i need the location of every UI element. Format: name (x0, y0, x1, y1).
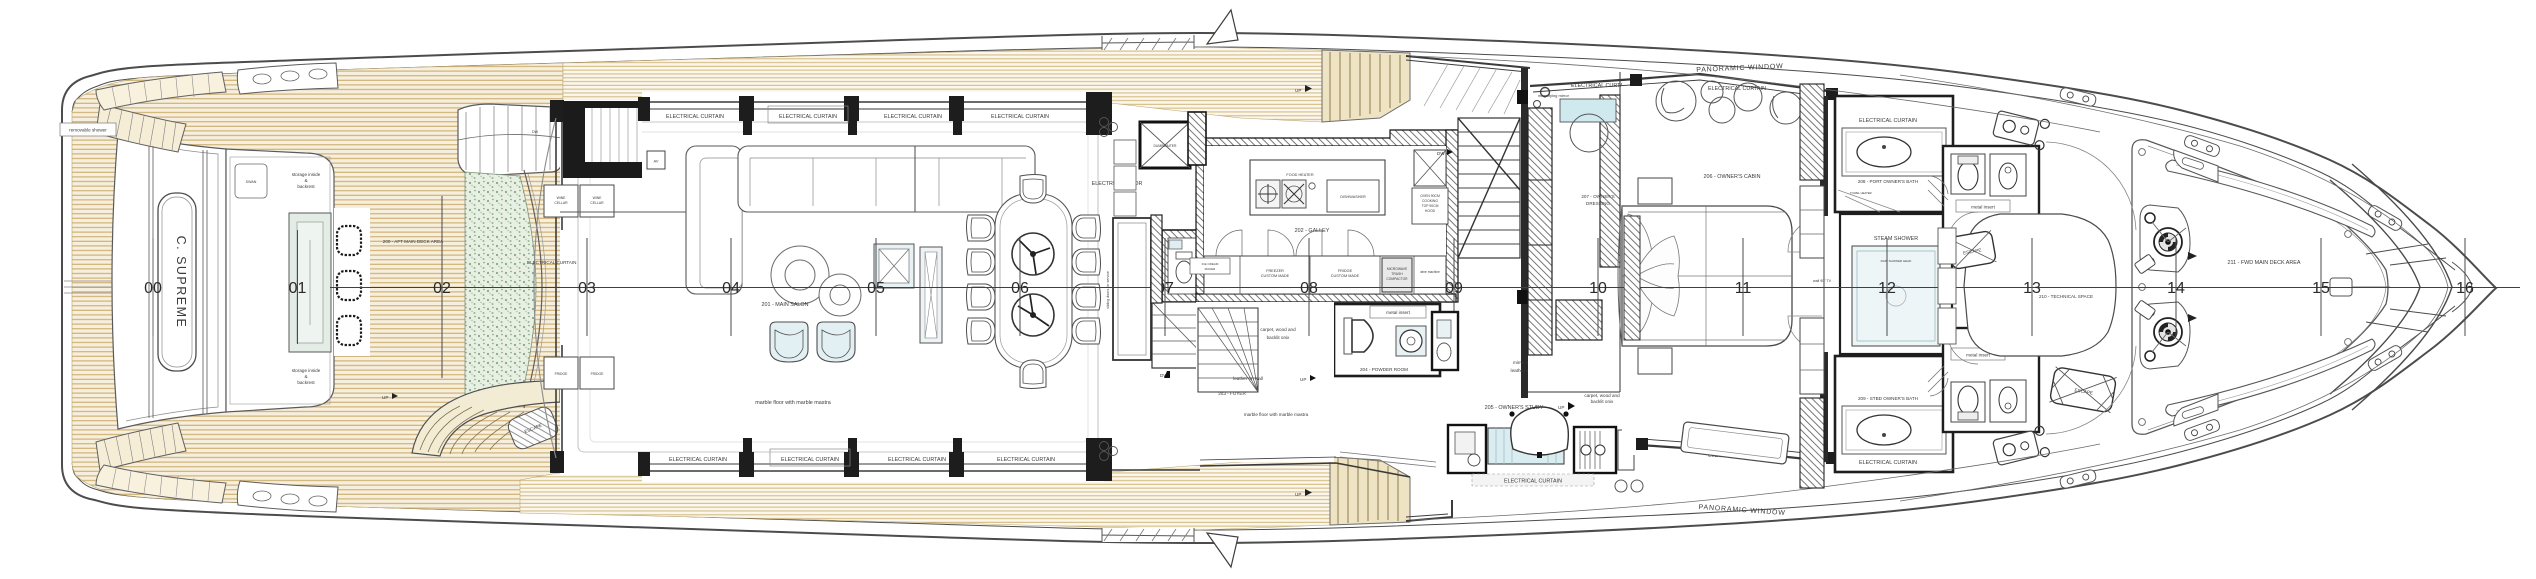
svg-text:C. SUPREME: C. SUPREME (174, 236, 188, 329)
svg-text:206 - OWNER'S CABIN: 206 - OWNER'S CABIN (1703, 174, 1760, 180)
svg-text:13: 13 (2023, 280, 2041, 297)
svg-text:sliding doors for service: sliding doors for service (1106, 271, 1110, 309)
svg-text:metal insert: metal insert (1386, 310, 1410, 315)
svg-text:FRIDGE: FRIDGE (555, 372, 569, 376)
svg-text:TOWEL HEATER: TOWEL HEATER (1850, 191, 1872, 195)
svg-text:carpet, wood and: carpet, wood and (1260, 327, 1296, 332)
svg-text:UP: UP (1558, 405, 1564, 410)
svg-text:TOP 90CM: TOP 90CM (1422, 204, 1439, 208)
svg-text:06: 06 (1011, 280, 1029, 297)
svg-text:backrest: backrest (297, 380, 315, 385)
svg-text:backrest: backrest (297, 184, 315, 189)
svg-text:209 - STBD OWNER'S BATH: 209 - STBD OWNER'S BATH (1858, 396, 1918, 401)
svg-text:DW: DW (532, 130, 539, 134)
svg-text:RAIN SHOWER HEAD: RAIN SHOWER HEAD (1881, 259, 1913, 263)
svg-text:ELECTRICAL CURTAIN: ELECTRICAL CURTAIN (779, 114, 837, 120)
svg-text:leather on wall: leather on wall (1233, 376, 1263, 381)
svg-text:ELECTRICAL CURTAIN: ELECTRICAL CURTAIN (991, 114, 1049, 120)
svg-text:FRIDGE: FRIDGE (591, 372, 605, 376)
svg-text:15: 15 (2312, 280, 2330, 297)
svg-text:&: & (304, 374, 307, 379)
svg-text:marble floor with marble mastr: marble floor with marble mastra (1244, 412, 1309, 417)
svg-text:&: & (304, 178, 307, 183)
svg-text:MAKER: MAKER (1205, 267, 1217, 271)
svg-text:SWAN: SWAN (246, 180, 257, 184)
svg-text:ELECTRICAL CURTAIN: ELECTRICAL CURTAIN (884, 114, 942, 120)
svg-text:DUMBWAITER: DUMBWAITER (1153, 144, 1177, 148)
svg-text:ELECTRICAL CURTAIN: ELECTRICAL CURTAIN (1504, 479, 1562, 485)
svg-text:ELECTRICAL CURTAIN: ELECTRICAL CURTAIN (781, 457, 839, 463)
svg-text:metal insert: metal insert (1971, 205, 1995, 210)
svg-text:05: 05 (867, 280, 885, 297)
svg-text:08: 08 (1300, 280, 1318, 297)
svg-text:200 - AFT MAIN DECK AREA: 200 - AFT MAIN DECK AREA (383, 239, 444, 244)
svg-text:storage inside: storage inside (292, 172, 321, 177)
svg-text:backlit onix: backlit onix (1267, 335, 1290, 340)
svg-text:storage inside: storage inside (292, 368, 321, 373)
svg-text:MICROWAVE: MICROWAVE (1387, 267, 1408, 271)
svg-text:203 - FOYER: 203 - FOYER (1218, 391, 1246, 396)
svg-text:ELECTRICAL CURTAIN: ELECTRICAL CURTAIN (1859, 460, 1917, 466)
svg-text:UP: UP (1300, 377, 1306, 382)
svg-text:DISHWASHER: DISHWASHER (1340, 195, 1366, 199)
svg-text:16: 16 (2456, 280, 2474, 297)
svg-text:carpet, wood and: carpet, wood and (1584, 393, 1620, 398)
svg-text:ICE CREAM: ICE CREAM (1202, 262, 1219, 266)
svg-text:210 - TECHNICAL SPACE: 210 - TECHNICAL SPACE (2039, 294, 2093, 299)
svg-text:metal insert: metal insert (1966, 353, 1990, 358)
svg-text:03: 03 (578, 280, 596, 297)
svg-text:HOOD: HOOD (1425, 209, 1436, 213)
svg-text:FREEZER: FREEZER (1266, 269, 1284, 273)
svg-text:ELECTRICAL CURTAIN: ELECTRICAL CURTAIN (997, 457, 1055, 463)
svg-text:COMPACTOR: COMPACTOR (1386, 277, 1408, 281)
svg-text:AV: AV (654, 160, 659, 164)
svg-text:UP: UP (382, 395, 388, 400)
svg-text:205 - OWNER'S STUDY: 205 - OWNER'S STUDY (1485, 405, 1544, 411)
svg-text:removable shower: removable shower (69, 128, 107, 133)
svg-text:FOOD HEATER: FOOD HEATER (1286, 173, 1313, 177)
svg-text:UP: UP (1295, 88, 1301, 93)
svg-text:207 - OWNER'S: 207 - OWNER'S (1581, 194, 1614, 199)
svg-text:202 - GALLEY: 202 - GALLEY (1295, 228, 1330, 234)
svg-text:14: 14 (2167, 280, 2185, 297)
svg-text:FRIDGE: FRIDGE (1338, 269, 1353, 273)
svg-text:201 - MAIN SALON: 201 - MAIN SALON (761, 302, 808, 308)
svg-text:ELECTRICAL CURTAIN: ELECTRICAL CURTAIN (669, 457, 727, 463)
svg-text:CELLAR: CELLAR (590, 201, 604, 205)
svg-text:ELECTRICAL CURTAIN: ELECTRICAL CURTAIN (888, 457, 946, 463)
svg-text:ELECTRICAL CURTAIN: ELECTRICAL CURTAIN (666, 114, 724, 120)
svg-text:DW: DW (1437, 151, 1445, 156)
svg-text:WINE: WINE (593, 196, 603, 200)
svg-text:01: 01 (289, 280, 307, 297)
svg-text:ELECTRICAL CURTAIN: ELECTRICAL CURTAIN (1859, 118, 1917, 124)
svg-text:UP: UP (1295, 492, 1301, 497)
svg-text:CUSTOM MADE: CUSTOM MADE (1331, 274, 1360, 278)
svg-text:marble floor with marble mastr: marble floor with marble mastra (755, 400, 831, 406)
svg-text:OVEN 90CM: OVEN 90CM (1420, 194, 1440, 198)
svg-text:208 - PORT OWNER'S BATH: 208 - PORT OWNER'S BATH (1858, 179, 1918, 184)
svg-text:04: 04 (722, 280, 740, 297)
svg-text:TRASH: TRASH (1391, 272, 1403, 276)
svg-text:CUSTOM MADE: CUSTOM MADE (1261, 274, 1290, 278)
svg-text:204 - POWDER ROOM: 204 - POWDER ROOM (1360, 367, 1408, 372)
svg-text:09: 09 (1445, 280, 1463, 297)
svg-text:11: 11 (1735, 280, 1752, 297)
svg-text:wine machine: wine machine (1420, 270, 1440, 274)
svg-text:ELECTRICAL CURTAIN: ELECTRICAL CURTAIN (527, 260, 576, 265)
svg-text:WINE: WINE (557, 196, 567, 200)
svg-text:backlit onix: backlit onix (1591, 399, 1614, 404)
svg-text:STEAM SHOWER: STEAM SHOWER (1874, 236, 1918, 242)
svg-text:12: 12 (1878, 280, 1896, 297)
svg-text:10: 10 (1589, 280, 1607, 297)
svg-text:211 - FWD MAIN DECK AREA: 211 - FWD MAIN DECK AREA (2228, 260, 2301, 266)
svg-text:CELLAR: CELLAR (554, 201, 568, 205)
svg-text:COOKING: COOKING (1422, 199, 1438, 203)
svg-text:wall 90" TV: wall 90" TV (1813, 279, 1832, 283)
svg-text:magnifying mirror: magnifying mirror (1538, 93, 1570, 98)
svg-text:02: 02 (433, 280, 451, 297)
svg-text:DRESSING: DRESSING (1586, 201, 1610, 206)
